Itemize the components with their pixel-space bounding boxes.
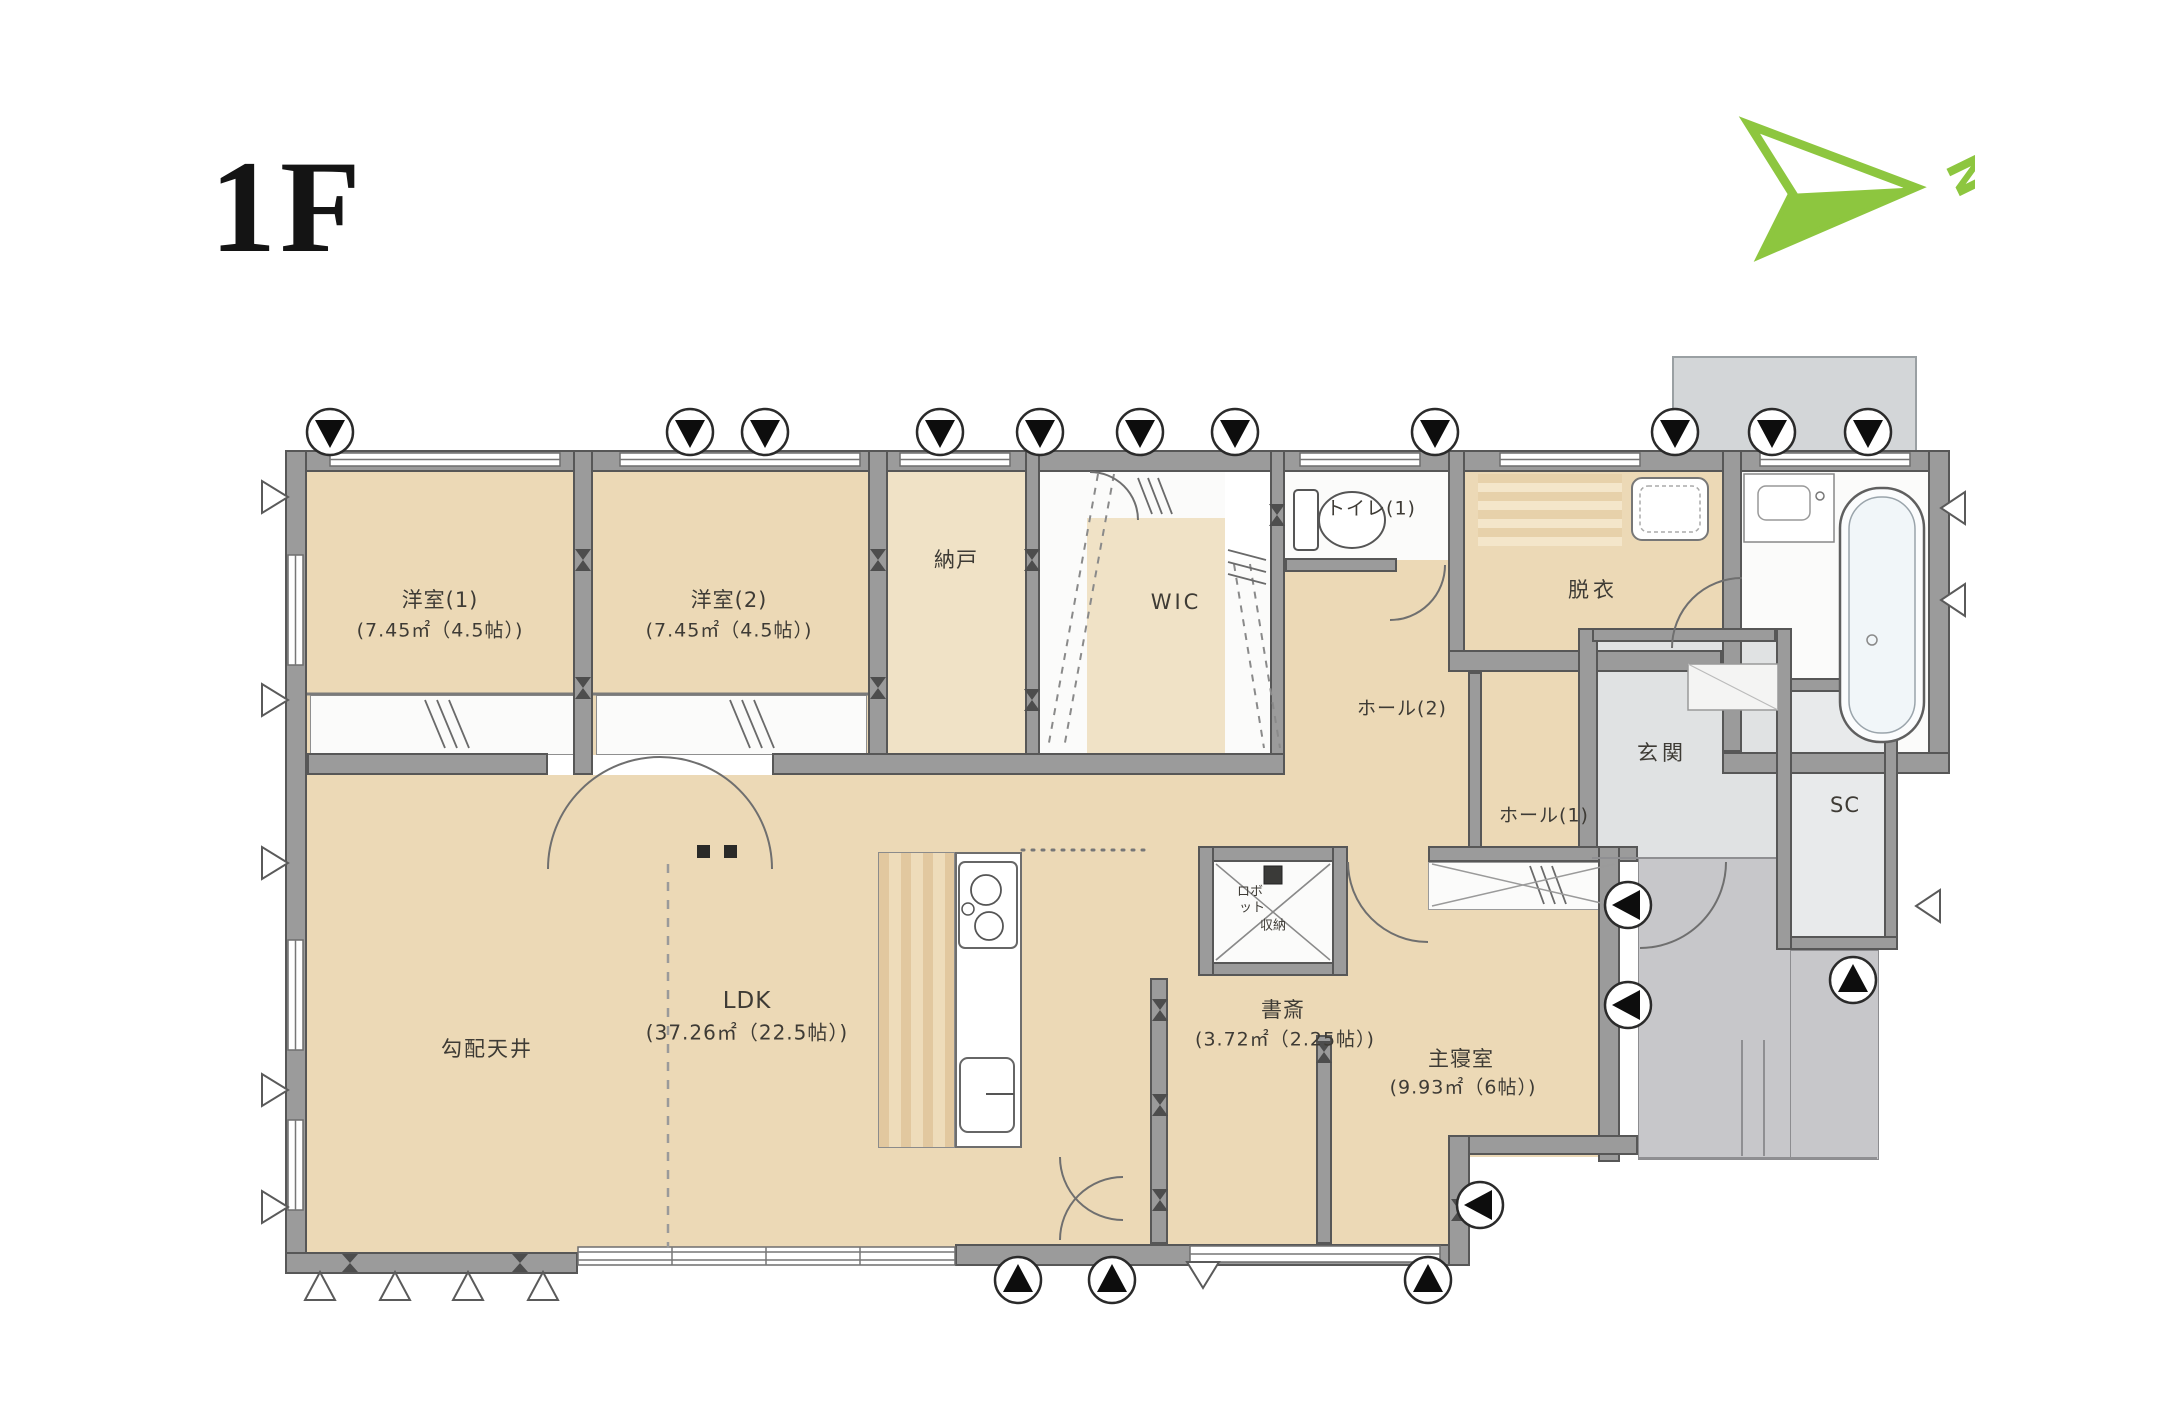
wall-bottom-left [285,1252,578,1274]
roof-eave-area [1672,356,1917,456]
kitchen-unit [955,852,1022,1148]
north-arrow-icon: N [1735,100,1975,278]
wall-sc-top [1790,678,1898,692]
room-label-nando: 納戸 [934,544,978,574]
room-label-toilet1: トイレ(1) [1326,494,1416,521]
ladder-shaft-b [1225,560,1270,755]
vent-markers-top [307,409,1891,455]
room-nando-floor [888,472,1025,755]
storage-label-line3: 収納 [1260,915,1286,934]
room-label-yoshitsu1: 洋室(1) [402,584,479,614]
wall-bedroom-band-bottom-b [772,753,1285,775]
compass-n-letter: N [1935,146,1975,205]
room-label-hall2: ホール(2) [1357,694,1447,721]
room-label-genkan: 玄関 [1637,737,1687,767]
wall-storage-right [1332,846,1348,976]
wall-yoshitsu2-nando [868,450,888,775]
wall-genkan-sc [1776,628,1792,950]
wall-shosai-left [1150,978,1168,1244]
storage-closet [1214,862,1332,962]
room-area-bedroom: (9.93㎡（6帖）) [1390,1073,1537,1100]
wall-top [285,450,1950,472]
wall-step [1448,1135,1638,1155]
room-area-shosai: (3.72㎡（2.25帖）) [1195,1025,1375,1052]
storage-label-line2: ット [1239,897,1265,916]
room-wic-floor [1087,518,1225,755]
wall-sc-right [1884,678,1898,950]
wall-bedroom-right [1598,846,1620,1162]
room-label-yoshitsu2: 洋室(2) [691,584,768,614]
entrance-porch [1638,858,1792,1160]
wall-hall1-left [1468,672,1482,862]
closet-yoshitsu1 [310,695,575,755]
room-area-yoshitsu2: (7.45㎡（4.5帖）) [646,616,813,643]
wall-bath-bottom [1722,752,1950,774]
wall-sc-bottom [1790,936,1898,950]
room-area-ldk: (37.26㎡（22.5帖）) [646,1017,848,1046]
room-label-ldk: LDK [723,988,772,1014]
wall-storage-bottom [1198,962,1348,976]
entrance-porch-right [1790,950,1879,1160]
wall-nando-right [1025,450,1040,775]
room-area-yoshitsu1: (7.45㎡（4.5帖）) [357,616,524,643]
kitchen-counter [878,852,955,1148]
wall-left [285,450,307,1274]
datsui-shelves [1478,474,1622,546]
room-label-kobai: 勾配天井 [441,1033,533,1063]
wall-toilet-left [1270,450,1285,775]
wall-shosai-bedroom [1316,1035,1332,1244]
wall-toilet-bottom [1285,558,1397,572]
room-label-sc: SC [1830,793,1860,817]
wall-genkan-top [1592,628,1776,642]
wall-corner-right [1448,1135,1470,1266]
room-label-hall1: ホール(1) [1499,801,1589,828]
wall-datsui-bath [1722,450,1742,752]
room-label-datsui: 脱衣 [1568,574,1618,604]
page-title: 1F [210,130,365,283]
wic-entry-strip [1087,472,1225,518]
exterior-cutout [1470,1157,1598,1252]
wall-bottom-mid [955,1244,1470,1266]
closet-yoshitsu2 [596,695,867,755]
wall-storage-top [1198,846,1348,862]
wall-datsui-left [1448,450,1465,672]
room-label-bedroom: 主寝室 [1428,1043,1494,1073]
ladder-shaft-a [1040,472,1087,755]
wall-yoshitsu-divider [573,450,593,775]
bedroom-closet [1428,862,1620,910]
column-marker-icon [724,845,737,858]
wall-storage-left [1198,846,1214,976]
wall-right [1928,450,1950,774]
floor-plan-page: 1F N [0,0,2184,1422]
column-marker-icon [697,845,710,858]
room-label-wic: WIC [1151,590,1202,614]
room-label-shosai: 書斎 [1261,994,1305,1024]
wall-bedroom-band-bottom-a [307,753,548,775]
